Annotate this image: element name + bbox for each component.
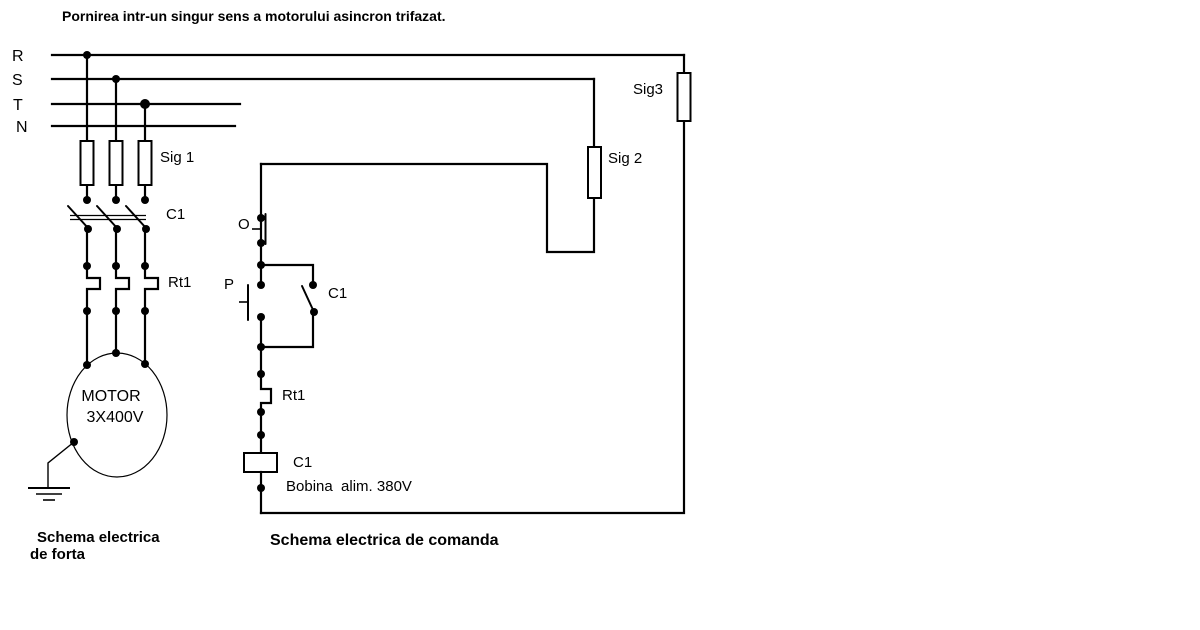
junction-dot [112,349,120,357]
junction-dot [257,281,265,289]
junction-dot [141,360,149,368]
contactor-coil [244,453,277,472]
motor-voltage-label: 3X400V [87,409,144,426]
phase-label-r: R [12,48,24,65]
junction-dot [309,281,317,289]
junction-dot [112,262,120,270]
junction-dot [84,225,92,233]
junction-dot [83,51,91,59]
seal-contact-label: C1 [328,285,347,302]
diagram-title: Pornirea intr-un singur sens a motorului… [62,8,446,24]
junction-dot [141,196,149,204]
junction-dot [83,307,91,315]
coil-caption: Bobina alim. 380V [286,478,412,495]
junction-dot [83,196,91,204]
phase-label-n: N [16,119,28,136]
thermal-relay-rt1-label: Rt1 [168,274,191,291]
junction-dot [83,361,91,369]
junction-dot [112,307,120,315]
junction-dot [112,75,120,83]
power-caption-line2: de forta [30,546,86,563]
junction-dot [257,214,265,222]
power-caption-line1: Schema electrica [37,529,160,546]
junction-dot [257,431,265,439]
junction-dot [112,196,120,204]
fuse-sig2-label: Sig 2 [608,150,642,167]
contactor-c1-label: C1 [166,206,185,223]
phase-label-t: T [13,97,23,114]
junction-dot [142,225,150,233]
control-rt1-label: Rt1 [282,387,305,404]
phase-label-s: S [12,72,23,89]
junction-dot [310,308,318,316]
stop-button-label: O [238,216,250,233]
junction-dot [257,408,265,416]
control-caption: Schema electrica de comanda [270,532,499,549]
junction-dot [257,343,265,351]
start-button-label: P [224,276,234,293]
junction-dot [257,484,265,492]
junction-dot [257,261,265,269]
junction-dot [141,307,149,315]
junction-dot [113,225,121,233]
motor-name-label: MOTOR [81,388,140,405]
junction-dot [257,313,265,321]
junction-dot [83,262,91,270]
junction-dot [70,438,78,446]
junction-dot [140,99,150,109]
fuse-sig1-phase1 [81,141,94,185]
coil-label: C1 [293,454,312,471]
fuse-sig3-label: Sig3 [633,81,663,98]
fuse-sig1-phase3 [139,141,152,185]
junction-dot [257,370,265,378]
junction-dot [141,262,149,270]
fuse-sig2 [588,147,601,198]
fuse-sig3 [678,73,691,121]
fuse-sig1-phase2 [110,141,123,185]
diagram-background [0,0,1200,630]
fuse-sig1-label: Sig 1 [160,149,194,166]
circuit-diagram: Pornirea intr-un singur sens a motorului… [0,0,1200,630]
junction-dot [257,239,265,247]
